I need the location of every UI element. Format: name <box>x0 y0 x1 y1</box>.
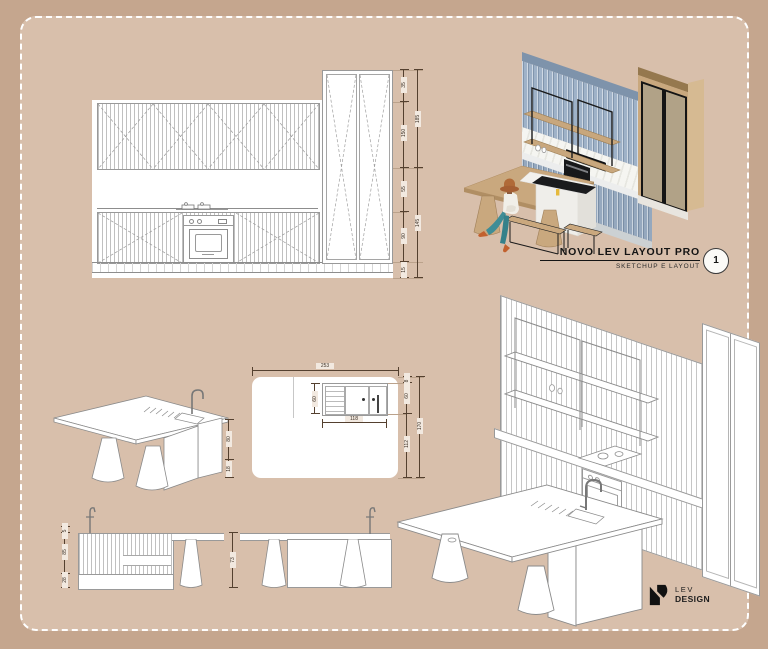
dim-label: 15 <box>401 262 407 278</box>
oven-control-panel <box>184 216 233 226</box>
iso-island-dim-chain: 80 18 <box>228 420 229 478</box>
dim-label: 28 <box>62 572 68 588</box>
plan-top-dimension: 253 <box>252 370 398 371</box>
dim-label: 55 <box>401 181 407 197</box>
table-island-split-line <box>293 377 294 418</box>
title-block: NOVO LEV LAYOUT PRO SKETCHUP E LAYOUT <box>540 246 700 270</box>
presentation-board: 35 150 55 90 15 185 145 <box>0 0 768 649</box>
dim-label: 73 <box>230 552 236 568</box>
table-leg-cone <box>136 446 168 490</box>
sink-depth-dimension: 60 <box>314 384 315 414</box>
island-plinth <box>78 574 174 590</box>
dim-label: 35 <box>401 77 407 93</box>
logo-name: LEV <box>675 586 710 594</box>
table-leg-cone <box>338 539 368 589</box>
lev-design-logo-icon <box>648 583 670 607</box>
sheet-number: 1 <box>713 255 719 266</box>
dim-label: 150 <box>401 125 407 141</box>
colored-isometric-render <box>460 38 720 258</box>
oven-door <box>189 229 228 259</box>
tall-door-right <box>359 74 390 260</box>
dim-label: 90 <box>401 228 407 244</box>
shelf-frames <box>532 88 612 166</box>
sink-unit-plan <box>322 383 388 416</box>
kitchen-isometric-drawing <box>390 278 768 638</box>
dim-label: 145 <box>415 215 421 231</box>
tall-door-left <box>326 74 357 260</box>
drainboard <box>325 386 345 415</box>
dim-label: 60 <box>312 391 318 407</box>
dimension-chain-inner: 35 150 55 90 15 <box>403 70 404 278</box>
dim-label: 85 <box>62 544 68 560</box>
dimension-chain-outer: 185 145 <box>417 70 418 278</box>
table-leg-cone <box>92 438 124 482</box>
dim-label: 118 <box>345 416 363 422</box>
island-front-dim-chain: 5 85 28 <box>64 527 65 588</box>
island-isometric-drawing <box>46 380 246 495</box>
lev-design-logo: LEV DESIGN <box>648 583 710 607</box>
island-fluted-front <box>78 533 174 576</box>
tall-cabinet-elevation <box>322 70 393 264</box>
cooktop-icon <box>176 201 228 211</box>
sink-width-dimension: 118 <box>322 422 386 423</box>
upper-cabinets-fluted <box>97 103 320 170</box>
island-side-face <box>198 418 222 478</box>
dim-label: 5 <box>62 523 68 539</box>
yellow-glass <box>556 189 559 196</box>
drawer-lines <box>123 555 171 566</box>
sink-bowl <box>345 386 369 415</box>
faucet-handle <box>377 395 379 413</box>
upper-door-swing-marks <box>98 104 319 169</box>
dim-label: 253 <box>316 363 334 369</box>
dim-label: 18 <box>226 461 232 477</box>
dim-label: 80 <box>226 431 232 447</box>
sink-bowl-2 <box>369 386 387 415</box>
project-title: NOVO LEV LAYOUT PRO <box>540 246 700 261</box>
cup <box>448 538 456 542</box>
faucet-icon <box>84 504 98 534</box>
table-leg-cone <box>178 539 204 589</box>
render-foreground <box>460 38 720 258</box>
oven-front <box>183 215 234 264</box>
sheet-number-badge: 1 <box>703 248 729 274</box>
dim-label: 185 <box>415 111 421 127</box>
table-leg-cone <box>260 539 288 589</box>
project-subtitle: SKETCHUP E LAYOUT <box>540 263 700 270</box>
logo-suffix: DESIGN <box>675 594 710 604</box>
table-height-dimension: 73 <box>232 533 233 588</box>
island-table-group <box>390 278 768 638</box>
faucet-icon <box>364 504 378 534</box>
